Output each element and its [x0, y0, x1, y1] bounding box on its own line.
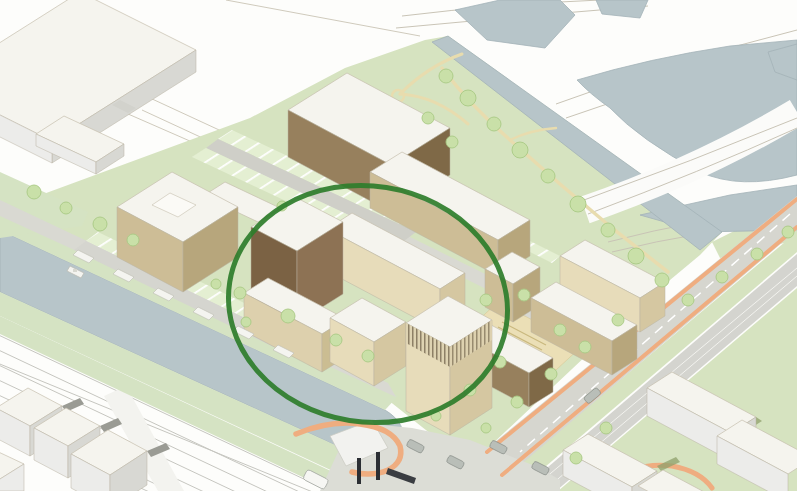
tree — [127, 234, 139, 246]
mast — [376, 452, 380, 480]
mast — [357, 458, 361, 484]
tree — [600, 422, 612, 434]
tree — [460, 90, 476, 106]
tree — [655, 273, 669, 287]
tree — [511, 396, 523, 408]
tree — [330, 334, 342, 346]
site-plan-canvas — [0, 0, 797, 491]
tree — [27, 185, 41, 199]
tree — [446, 136, 458, 148]
tree — [362, 350, 374, 362]
tree — [570, 196, 586, 212]
tree — [716, 271, 728, 283]
tree — [481, 423, 491, 433]
tree — [422, 112, 434, 124]
site-plan-rendering — [0, 0, 797, 491]
tree — [211, 279, 221, 289]
tree — [554, 324, 566, 336]
tree — [480, 294, 492, 306]
tree — [601, 223, 615, 237]
tree — [518, 289, 530, 301]
tree — [751, 248, 763, 260]
tree — [682, 294, 694, 306]
tree — [93, 217, 107, 231]
tree — [579, 341, 591, 353]
tree — [512, 142, 528, 158]
tree — [487, 117, 501, 131]
boat-cabin — [73, 269, 77, 272]
tree — [570, 452, 582, 464]
tree — [612, 314, 624, 326]
tree — [782, 226, 794, 238]
tree — [241, 317, 251, 327]
tree — [281, 309, 295, 323]
tree — [234, 287, 246, 299]
tree — [628, 248, 644, 264]
tree — [60, 202, 72, 214]
tree — [541, 169, 555, 183]
tree — [545, 368, 557, 380]
tree — [439, 69, 453, 83]
